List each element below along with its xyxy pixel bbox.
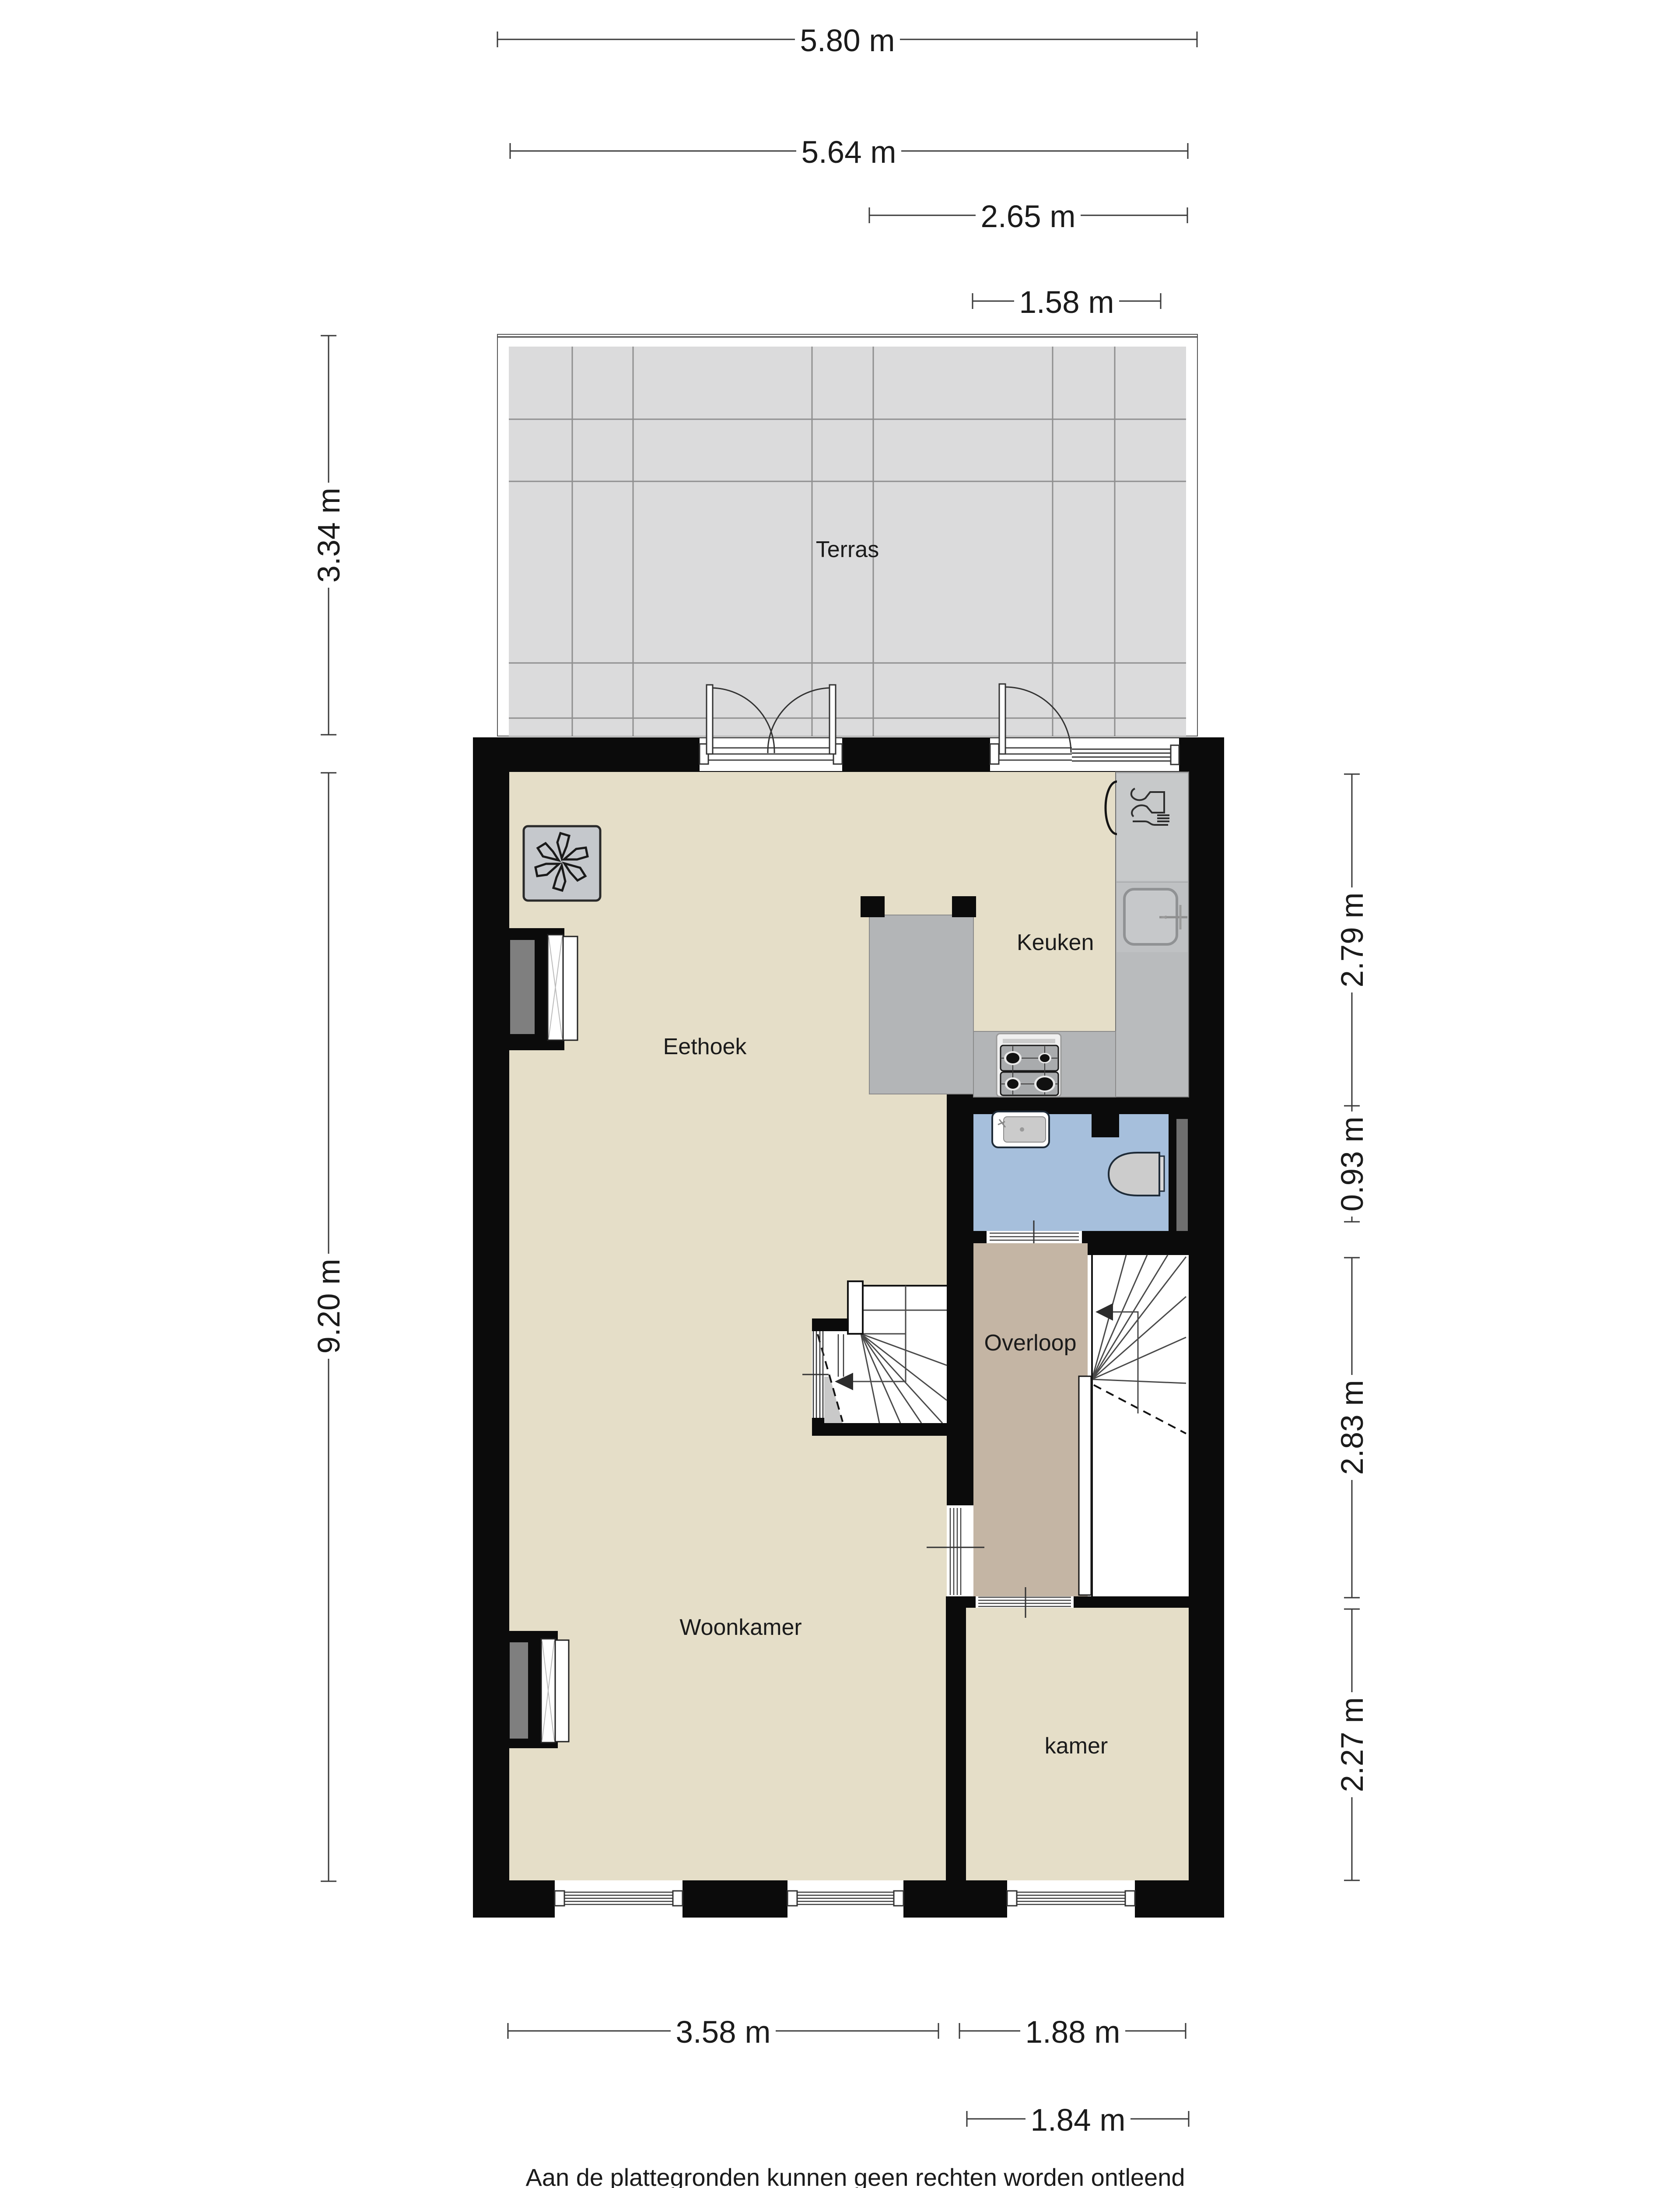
svg-text:2.65 m: 2.65 m <box>980 200 1075 234</box>
svg-text:1.88 m: 1.88 m <box>1025 2015 1120 2050</box>
svg-text:2.79 m: 2.79 m <box>1335 892 1370 987</box>
svg-text:3.58 m: 3.58 m <box>675 2015 770 2050</box>
svg-text:Aan de plattegronden kunnen ge: Aan de plattegronden kunnen geen rechten… <box>526 2163 1185 2188</box>
svg-text:2.83 m: 2.83 m <box>1335 1380 1370 1475</box>
svg-text:5.64 m: 5.64 m <box>801 135 896 170</box>
svg-text:Terras: Terras <box>816 537 879 562</box>
svg-text:kamer: kamer <box>1045 1733 1108 1759</box>
svg-text:2.27 m: 2.27 m <box>1335 1697 1370 1792</box>
svg-text:5.80 m: 5.80 m <box>800 24 895 58</box>
svg-text:0.93 m: 0.93 m <box>1335 1116 1370 1211</box>
svg-text:Overloop: Overloop <box>984 1330 1077 1356</box>
svg-text:9.20 m: 9.20 m <box>312 1259 346 1353</box>
svg-text:Eethoek: Eethoek <box>663 1034 747 1059</box>
svg-text:3.34 m: 3.34 m <box>312 487 346 582</box>
svg-text:1.58 m: 1.58 m <box>1019 285 1114 320</box>
svg-text:Keuken: Keuken <box>1017 930 1094 955</box>
svg-text:1.84 m: 1.84 m <box>1030 2103 1125 2138</box>
svg-text:Woonkamer: Woonkamer <box>679 1615 801 1640</box>
